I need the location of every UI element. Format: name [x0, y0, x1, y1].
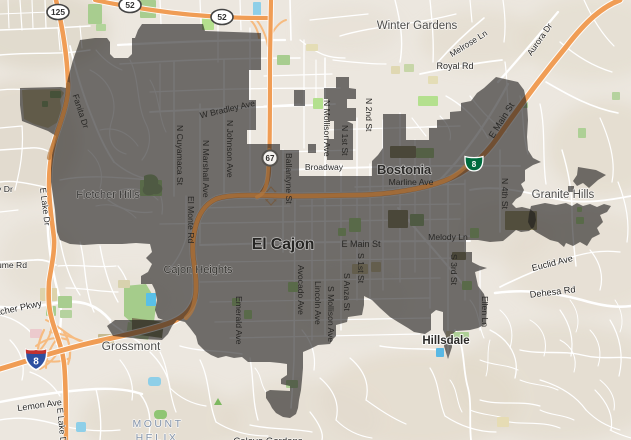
- svg-text:Emerald Ave: Emerald Ave: [234, 296, 244, 345]
- svg-text:Fletcher Hills: Fletcher Hills: [76, 189, 140, 201]
- svg-text:S 1st St: S 1st St: [356, 253, 366, 284]
- svg-text:67: 67: [266, 154, 275, 163]
- svg-text:Ballantyne St: Ballantyne St: [284, 153, 294, 204]
- svg-text:Royal Rd: Royal Rd: [436, 61, 473, 71]
- svg-text:E Main St: E Main St: [341, 239, 381, 249]
- svg-text:Ellen Ln: Ellen Ln: [480, 296, 490, 327]
- svg-text:N Cuyamaca St: N Cuyamaca St: [175, 125, 185, 186]
- svg-text:El Monte Rd: El Monte Rd: [186, 196, 196, 244]
- svg-text:N 2nd St: N 2nd St: [364, 98, 374, 132]
- svg-text:Bostonia: Bostonia: [377, 162, 432, 177]
- svg-text:Hillsdale: Hillsdale: [422, 335, 469, 347]
- svg-text:Calavo Gardens: Calavo Gardens: [233, 436, 303, 440]
- svg-text:8: 8: [33, 357, 39, 368]
- svg-text:Lincoln Ave: Lincoln Ave: [313, 281, 323, 325]
- svg-text:Avocado Ave: Avocado Ave: [296, 265, 306, 315]
- svg-text:Winter Gardens: Winter Gardens: [377, 20, 458, 32]
- svg-text:Grossmont: Grossmont: [102, 339, 161, 353]
- svg-text:ume Rd: ume Rd: [0, 260, 27, 270]
- svg-text:125: 125: [51, 7, 65, 17]
- svg-text:52: 52: [125, 0, 135, 10]
- svg-text:Broadway: Broadway: [305, 162, 344, 172]
- svg-text:Marline Ave: Marline Ave: [389, 177, 434, 187]
- svg-text:MOUNT: MOUNT: [133, 418, 184, 430]
- svg-text:8: 8: [472, 160, 477, 169]
- svg-text:Cajon Heights: Cajon Heights: [163, 264, 233, 276]
- svg-text:S Mollison Ave: S Mollison Ave: [326, 286, 336, 342]
- svg-text:Melody Ln: Melody Ln: [428, 232, 468, 242]
- svg-text:El Cajon: El Cajon: [252, 236, 314, 253]
- svg-text:y Dr: y Dr: [0, 184, 13, 194]
- svg-text:N Mollison Ave: N Mollison Ave: [322, 100, 332, 157]
- svg-text:52: 52: [217, 12, 227, 22]
- svg-text:N 4th St: N 4th St: [500, 178, 510, 210]
- svg-text:S 3rd St: S 3rd St: [449, 254, 459, 286]
- svg-text:N 1st St: N 1st St: [340, 125, 350, 156]
- svg-text:HELIX: HELIX: [136, 432, 179, 440]
- svg-text:N Marshall Ave: N Marshall Ave: [201, 140, 211, 198]
- svg-text:Granite Hills: Granite Hills: [532, 189, 595, 201]
- svg-text:S Anza St: S Anza St: [342, 273, 352, 311]
- svg-text:N Johnson Ave: N Johnson Ave: [225, 120, 235, 178]
